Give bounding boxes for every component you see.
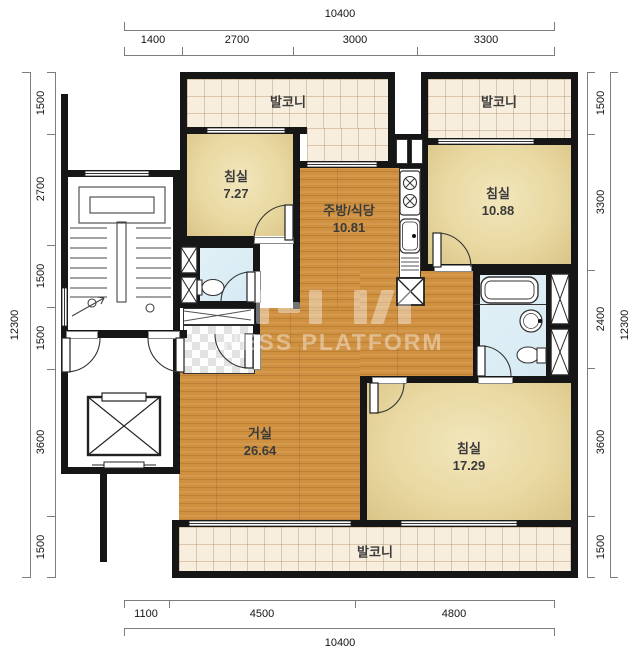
kitchen-counter	[399, 168, 421, 278]
room-area: 17.29	[453, 458, 486, 475]
dim-tick	[47, 307, 55, 308]
balcony-top-left-extension-floor	[307, 128, 388, 161]
window	[206, 127, 286, 134]
dim-tick	[182, 47, 183, 55]
elevator	[88, 393, 160, 468]
window	[400, 520, 518, 527]
wall	[473, 268, 480, 383]
dim-right-total: 12300	[619, 308, 631, 343]
wall-core	[100, 474, 107, 562]
dim-top-total: 10400	[323, 8, 358, 20]
dim-line-bottom-total	[124, 628, 555, 629]
dim-left-seg: 1500	[35, 89, 47, 117]
dim-bottom-seg: 4800	[440, 608, 468, 620]
room-name: 주방/식당	[323, 203, 374, 220]
dim-tick	[417, 47, 418, 55]
dim-top-seg: 3300	[472, 34, 500, 46]
wall-duct-block	[178, 248, 200, 308]
dim-right-seg: 1500	[595, 89, 607, 117]
room-name: 침실	[453, 441, 486, 458]
room-name: 발코니	[270, 95, 306, 112]
staircase	[70, 187, 171, 316]
dim-left-seg: 1500	[35, 533, 47, 561]
window	[437, 138, 535, 145]
room-name: 침실	[223, 169, 248, 186]
room-label-bedroom3: 침실 17.29	[453, 441, 486, 475]
dim-bottom-seg: 1100	[132, 608, 160, 620]
shoe-cabinet	[183, 308, 255, 325]
door-opening	[148, 331, 180, 339]
dim-top-seg: 2700	[223, 34, 251, 46]
entry-floor	[183, 325, 255, 374]
room-area: 26.64	[244, 443, 277, 460]
room-label-living: 거실 26.64	[244, 426, 277, 460]
dim-left-seg: 2700	[35, 175, 47, 203]
dim-tick	[355, 600, 356, 608]
wall	[421, 72, 578, 79]
room-label-bedroom1: 침실 7.27	[223, 169, 248, 203]
door-opening	[434, 265, 472, 272]
dim-left-seg: 3600	[35, 428, 47, 456]
dim-left-seg: 1500	[35, 324, 47, 352]
door-opening	[253, 334, 261, 370]
dim-tick	[22, 577, 30, 578]
room-area: 7.27	[223, 186, 248, 203]
door-opening	[372, 377, 407, 384]
dim-line-bottom-segments	[124, 600, 555, 601]
dim-tick	[554, 628, 555, 636]
wall-core	[173, 177, 180, 474]
wall-exterior-bottom	[172, 571, 578, 578]
window	[188, 520, 352, 527]
window	[84, 170, 150, 177]
room-label-balcony-bottom: 발코니	[357, 545, 393, 562]
dim-line-top-segments	[124, 55, 555, 56]
door-opening	[478, 377, 513, 384]
dim-tick	[610, 577, 618, 578]
dim-tick	[47, 516, 55, 517]
dim-tick	[124, 628, 125, 636]
wall	[178, 241, 260, 248]
dim-bottom-seg: 4500	[248, 608, 276, 620]
wall	[180, 72, 187, 134]
wall	[172, 520, 179, 578]
dim-left-total: 12300	[9, 308, 21, 343]
dim-tick	[124, 47, 125, 55]
dim-right-seg: 3300	[595, 188, 607, 216]
duct-box	[411, 139, 423, 164]
dim-left-seg: 1500	[35, 262, 47, 290]
dim-right-seg: 3600	[595, 428, 607, 456]
floor-plan: 발코니 발코니 침실 7.27 주방/식당 10.81 침실 10.88 거실 …	[0, 0, 640, 655]
room-name: 발코니	[481, 95, 517, 112]
dim-line-left-total	[30, 72, 31, 578]
wall-duct-block	[546, 268, 578, 383]
wall-core	[61, 94, 68, 170]
dim-tick	[124, 600, 125, 608]
dim-top-seg: 1400	[139, 34, 167, 46]
window	[306, 161, 378, 168]
dim-tick	[587, 577, 595, 578]
room-label-kitchen: 주방/식당 10.81	[323, 203, 374, 237]
door-opening	[253, 271, 261, 303]
window	[61, 287, 68, 327]
dim-tick	[124, 22, 125, 30]
dim-right-seg: 2400	[595, 305, 607, 333]
duct-box	[396, 139, 408, 164]
bathroom2-floor	[480, 275, 546, 376]
dim-tick	[610, 72, 618, 73]
dim-tick	[169, 600, 170, 608]
door-opening	[254, 237, 294, 244]
dim-tick	[554, 22, 555, 30]
dim-tick	[587, 270, 595, 271]
dim-tick	[22, 72, 30, 73]
room-name: 발코니	[357, 545, 393, 562]
room-name: 거실	[244, 426, 277, 443]
dim-tick	[47, 245, 55, 246]
dim-tick	[293, 47, 294, 55]
wall	[178, 301, 260, 308]
dim-tick	[587, 516, 595, 517]
room-label-bedroom2: 침실 10.88	[482, 186, 515, 220]
dim-tick	[554, 47, 555, 55]
dim-tick	[587, 72, 595, 73]
wall	[180, 134, 187, 243]
dim-tick	[554, 600, 555, 608]
corridor-floor	[360, 271, 473, 383]
wall	[293, 127, 300, 309]
dim-line-left-segments	[55, 72, 56, 578]
dim-tick	[587, 134, 595, 135]
dim-top-seg: 3000	[341, 34, 369, 46]
room-label-balcony-top-left: 발코니	[270, 95, 306, 112]
dim-line-right-segments	[587, 72, 588, 578]
dim-tick	[47, 134, 55, 135]
dim-tick	[587, 368, 595, 369]
door-opening	[66, 331, 98, 339]
dim-line-top-total	[124, 30, 555, 31]
wall	[253, 241, 260, 272]
room-area: 10.81	[323, 220, 374, 237]
dim-tick	[47, 577, 55, 578]
room-label-balcony-top-right: 발코니	[481, 95, 517, 112]
wall	[180, 72, 395, 79]
dim-bottom-total: 10400	[323, 637, 358, 649]
wall-core	[61, 338, 68, 474]
room-name: 침실	[482, 186, 515, 203]
room-area: 10.88	[482, 203, 515, 220]
wall	[360, 376, 367, 527]
dim-right-seg: 1500	[595, 533, 607, 561]
wall-core	[61, 467, 173, 474]
dim-tick	[47, 72, 55, 73]
dim-tick	[47, 369, 55, 370]
dim-line-right-total	[610, 72, 611, 578]
